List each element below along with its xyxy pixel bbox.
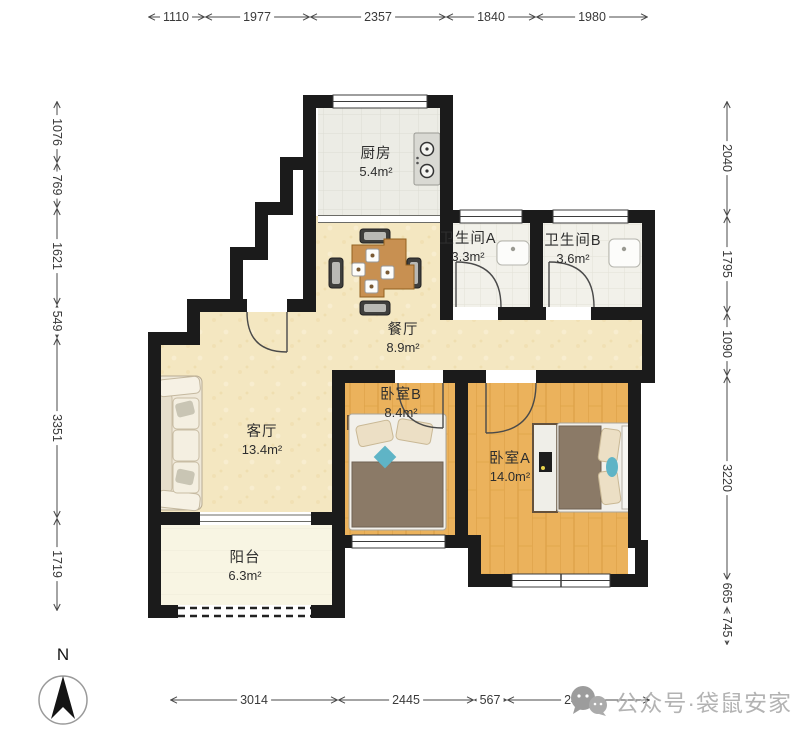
compass-icon	[39, 676, 87, 724]
dim-left-4: 3351	[50, 411, 64, 445]
dim-left-5: 1719	[50, 547, 64, 581]
dim-top-1: 1977	[240, 10, 274, 24]
floorplan-drawing	[0, 0, 792, 732]
wechat-bubbles-icon	[568, 685, 608, 717]
room-label-living: 客厅 13.4m²	[242, 423, 282, 459]
room-label-bathroom-b: 卫生间B 3.6m²	[544, 232, 601, 268]
dim-left-1: 769	[50, 172, 64, 199]
bed-a	[533, 423, 631, 512]
compass-north-label: N	[57, 645, 69, 665]
dim-left-2: 1621	[50, 239, 64, 273]
room-label-balcony: 阳台 6.3m²	[228, 549, 261, 585]
room-label-bathroom-a: 卫生间A 3.3m²	[439, 230, 496, 266]
watermark-text: 公众号·袋鼠安家	[615, 684, 792, 718]
room-label-dining: 餐厅 8.9m²	[386, 321, 419, 357]
dim-right-1: 1795	[720, 247, 734, 281]
dim-bottom-2: 567	[477, 693, 504, 707]
room-label-bedroom-a: 卧室A 14.0m²	[489, 450, 531, 486]
balcony-glazing	[178, 608, 311, 616]
stove	[414, 133, 440, 185]
watermark: 公众号·袋鼠安家	[568, 684, 792, 718]
dim-left-3: 549	[50, 308, 64, 335]
bed-b	[347, 414, 446, 530]
room-label-kitchen: 厨房 5.4m²	[359, 145, 392, 181]
dim-right-5: 745	[720, 614, 734, 641]
room-label-bedroom-b: 卧室B 8.4m²	[380, 386, 422, 422]
dim-top-4: 1980	[575, 10, 609, 24]
dim-left-0: 1076	[50, 115, 64, 149]
dim-bottom-1: 2445	[389, 693, 423, 707]
dim-right-4: 665	[720, 580, 734, 607]
dim-top-3: 1840	[474, 10, 508, 24]
sofa	[156, 376, 202, 511]
dim-bottom-0: 3014	[237, 693, 271, 707]
dim-right-2: 1090	[720, 327, 734, 361]
dim-right-3: 3220	[720, 461, 734, 495]
dim-top-2: 2357	[361, 10, 395, 24]
dim-top-0: 1110	[160, 10, 192, 24]
floorplan-page: 厨房 5.4m² 卫生间A 3.3m² 卫生间B 3.6m² 餐厅 8.9m² …	[0, 0, 792, 732]
dim-right-0: 2040	[720, 141, 734, 175]
